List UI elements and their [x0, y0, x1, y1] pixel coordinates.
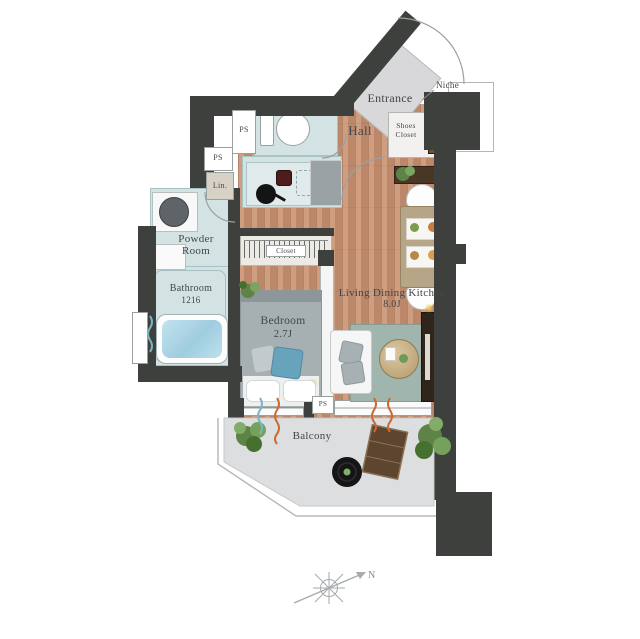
toilet-bowl	[276, 112, 310, 146]
powder-room-label-1: Powder	[178, 234, 213, 245]
wall-bath-bottom	[138, 366, 242, 382]
hall-label: Hall	[348, 124, 372, 137]
wall-window-stub-left	[228, 398, 244, 418]
bathroom-label-1: Bathroom	[170, 284, 212, 294]
coffee-table-notepad	[385, 347, 396, 361]
tv-screen	[425, 334, 430, 380]
shoes-closet-label-1: Shoes	[396, 122, 415, 130]
refrigerator	[310, 160, 342, 206]
balcony-rug	[362, 425, 407, 479]
entrance-label: Entrance	[367, 92, 412, 104]
balcony-label: Balcony	[293, 431, 332, 442]
stove-pan	[256, 184, 276, 204]
vanity-sink	[159, 197, 189, 227]
wall-top	[190, 96, 354, 116]
wall-right-bump	[456, 244, 466, 264]
wall-bottomright-block	[436, 492, 492, 556]
bedroom-label-1: Bedroom	[261, 316, 306, 328]
living-window	[334, 400, 432, 416]
wall-topright-block	[424, 92, 480, 150]
compass-north-label: N	[368, 570, 375, 581]
closet-label: Closet	[276, 248, 296, 255]
ldk-label-2: 8.0J	[383, 300, 401, 310]
balcony-plant-left	[234, 422, 266, 452]
wall-powder-right	[228, 188, 240, 408]
compass-icon	[294, 572, 366, 604]
floor-plan: N Entrance Niche Hall Shoes Closet PS PS…	[0, 0, 640, 639]
ps-mid-label: PS	[213, 154, 223, 162]
ps-toilet-label: PS	[239, 126, 249, 134]
coffee-table-plant	[399, 354, 408, 363]
food-plate-1	[410, 223, 419, 232]
powder-room-label-2: Room	[182, 246, 210, 257]
bed-pillow-1	[246, 380, 280, 402]
downlight-living	[424, 303, 434, 313]
balcony-table	[332, 457, 362, 487]
bathtub-water	[162, 320, 222, 358]
bathroom-label-2: 1216	[181, 296, 200, 305]
shoes-closet-label-2: Closet	[396, 131, 417, 139]
bed-cushion-blue	[270, 346, 304, 380]
sofa-cushion-2	[340, 360, 365, 385]
washer-space	[152, 244, 186, 270]
wall-closet-top	[240, 228, 334, 236]
toilet-tank	[260, 114, 274, 146]
linen-label: Lin.	[213, 182, 227, 190]
wall-right	[434, 148, 456, 500]
ldk-label-1: Living Dining Kitchen	[339, 288, 446, 299]
wall-bedroom-ldk-stub	[318, 250, 334, 266]
food-plate-3	[410, 251, 419, 260]
stove-pot	[276, 170, 292, 186]
niche-label: Niche	[436, 81, 459, 90]
bedroom-label-2: 2.7J	[274, 330, 292, 341]
bed-foot-band	[240, 290, 322, 302]
ps-balcony-label: PS	[319, 401, 327, 408]
bathroom-window	[132, 312, 148, 364]
